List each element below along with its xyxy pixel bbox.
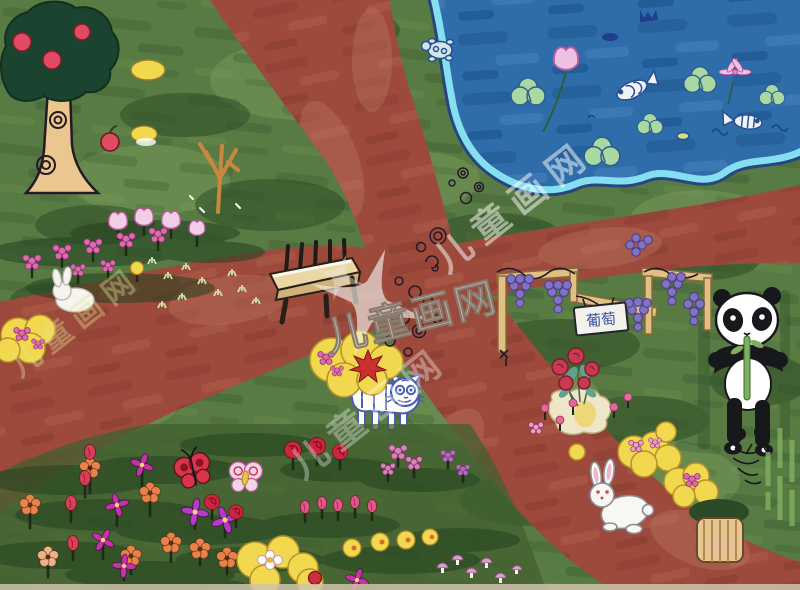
tree-canopy [1,2,119,101]
red-bush-flower [309,572,322,585]
park-painting: 葡萄 [0,0,800,590]
sign-text: 葡萄 [585,309,617,330]
painting-canvas: 葡萄 [0,0,800,590]
paper-edge [0,584,800,590]
tree-stump [689,499,749,562]
flower-garden [0,424,546,590]
pond [430,0,800,200]
